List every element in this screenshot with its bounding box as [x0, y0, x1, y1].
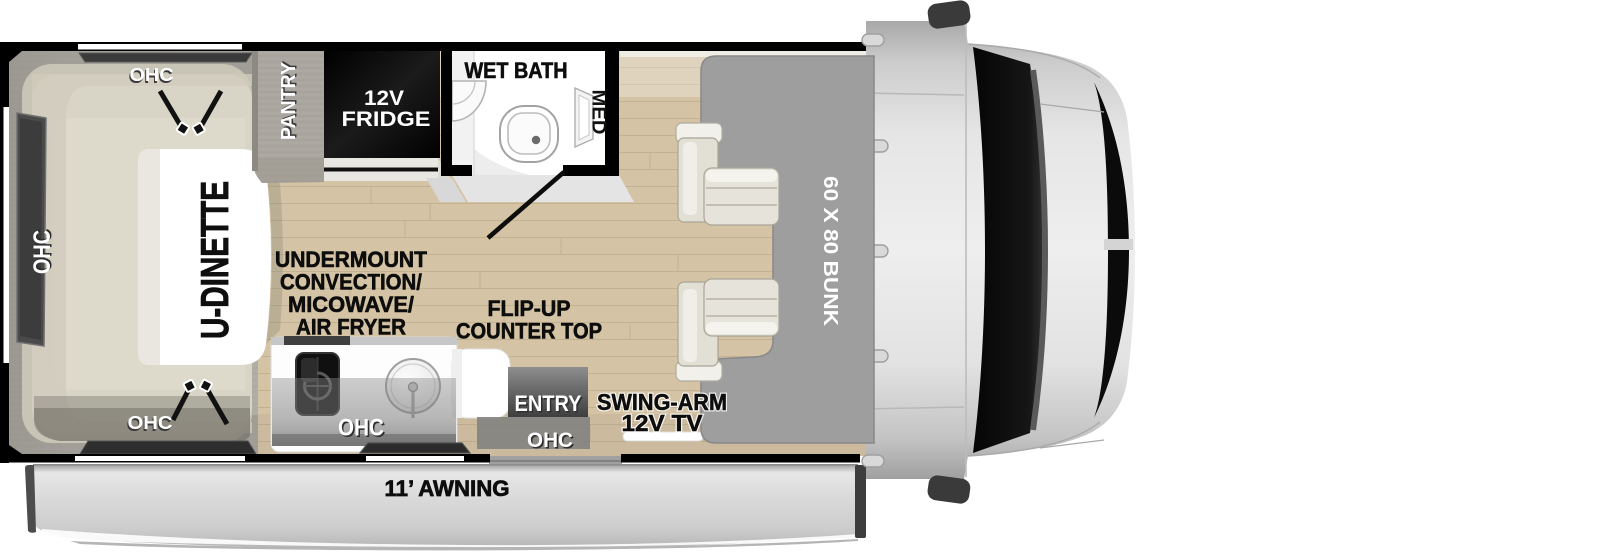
svg-text:FLIP-UP: FLIP-UP — [488, 296, 571, 321]
svg-text:WET BATH: WET BATH — [465, 58, 568, 83]
svg-text:PANTRY: PANTRY — [278, 61, 300, 140]
svg-text:OHC: OHC — [338, 415, 384, 442]
svg-text:OHC: OHC — [128, 413, 173, 433]
svg-text:OHC: OHC — [527, 429, 573, 452]
svg-text:FRIDGE: FRIDGE — [342, 108, 431, 131]
svg-text:OHC: OHC — [29, 230, 56, 274]
svg-text:CONVECTION/: CONVECTION/ — [280, 270, 422, 295]
svg-text:UNDERMOUNT: UNDERMOUNT — [275, 247, 428, 272]
svg-text:ENTRY: ENTRY — [515, 391, 582, 416]
svg-text:COUNTER TOP: COUNTER TOP — [456, 319, 602, 344]
svg-text:MED: MED — [588, 90, 610, 135]
svg-text:U-DINETTE: U-DINETTE — [194, 181, 237, 339]
svg-text:MICOWAVE/: MICOWAVE/ — [288, 292, 414, 317]
svg-text:11’ AWNING: 11’ AWNING — [385, 476, 510, 501]
svg-text:12V: 12V — [364, 87, 404, 110]
svg-text:AIR FRYER: AIR FRYER — [296, 315, 406, 340]
svg-text:60 X 80 BUNK: 60 X 80 BUNK — [819, 176, 841, 327]
svg-text:12V TV: 12V TV — [622, 410, 704, 436]
svg-text:OHC: OHC — [130, 65, 174, 85]
